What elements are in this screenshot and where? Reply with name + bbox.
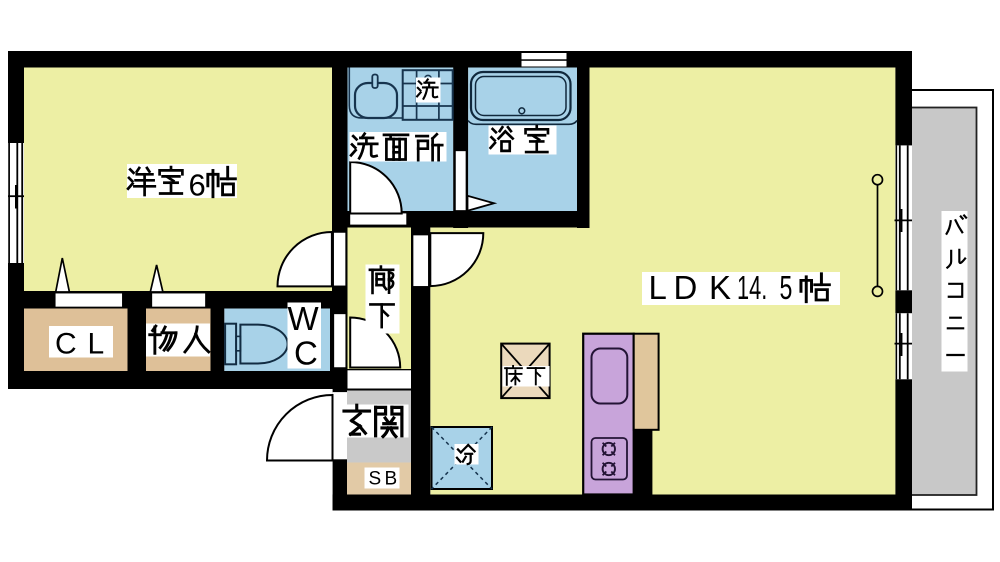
svg-text:K: K [709, 269, 731, 306]
svg-text:L: L [649, 269, 667, 306]
svg-text:S: S [369, 469, 382, 490]
svg-text:14.: 14. [737, 269, 767, 306]
svg-text:C: C [294, 335, 318, 372]
svg-text:6: 6 [189, 168, 206, 203]
svg-text:C: C [55, 328, 77, 361]
svg-text:5: 5 [780, 270, 793, 307]
svg-text:W: W [288, 300, 320, 337]
svg-text:D: D [674, 269, 698, 306]
svg-text:B: B [385, 469, 398, 490]
svg-text:L: L [88, 328, 105, 361]
